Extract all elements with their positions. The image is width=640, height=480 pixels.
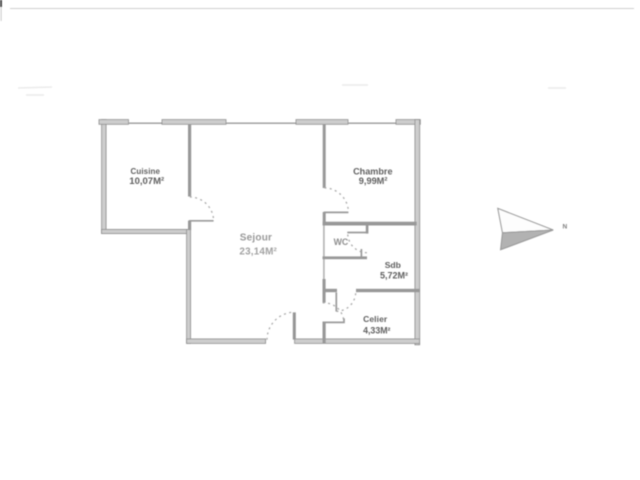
svg-text:Sejour: Sejour xyxy=(240,233,272,244)
svg-text:5,72M²: 5,72M² xyxy=(380,270,408,280)
svg-text:23,14M²: 23,14M² xyxy=(239,246,277,257)
svg-text:Chambre: Chambre xyxy=(353,166,392,176)
svg-text:N: N xyxy=(563,224,568,231)
svg-text:WC: WC xyxy=(334,237,349,247)
svg-text:4,33M²: 4,33M² xyxy=(363,325,390,335)
svg-text:9,99M²: 9,99M² xyxy=(359,176,388,186)
svg-text:Sdb: Sdb xyxy=(385,260,401,270)
svg-text:10,07M²: 10,07M² xyxy=(129,176,164,187)
svg-text:Cuisine: Cuisine xyxy=(131,167,161,176)
svg-text:Celier: Celier xyxy=(363,314,388,324)
